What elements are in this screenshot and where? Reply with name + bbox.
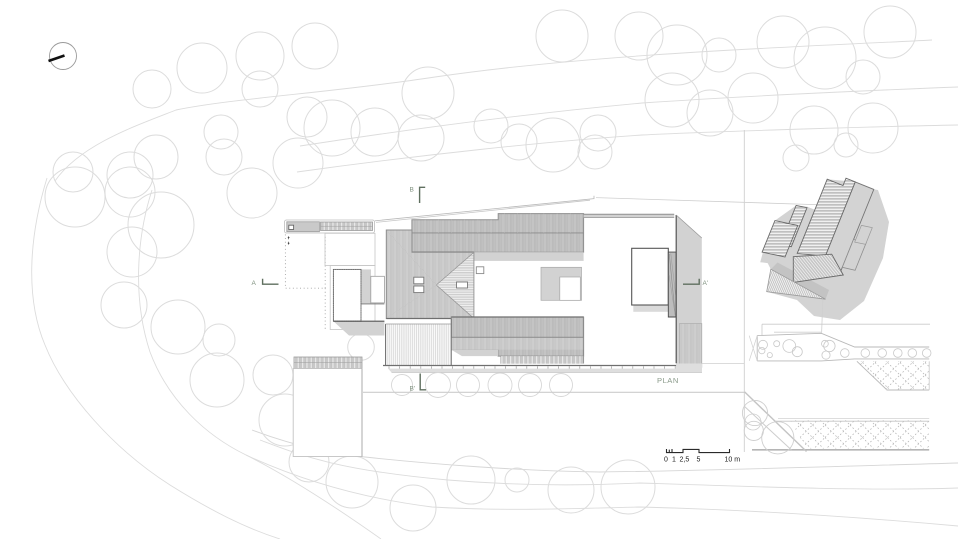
svg-text:A: A xyxy=(252,280,257,287)
svg-text:B: B xyxy=(410,187,414,194)
svg-text:2,5: 2,5 xyxy=(680,457,690,464)
svg-text:B': B' xyxy=(410,386,416,393)
svg-text:5: 5 xyxy=(697,457,701,464)
svg-text:PLAN: PLAN xyxy=(657,376,679,385)
svg-text:1: 1 xyxy=(672,457,676,464)
svg-text:10 m: 10 m xyxy=(725,457,741,464)
svg-text:A': A' xyxy=(703,280,709,287)
svg-text:0: 0 xyxy=(664,457,668,464)
